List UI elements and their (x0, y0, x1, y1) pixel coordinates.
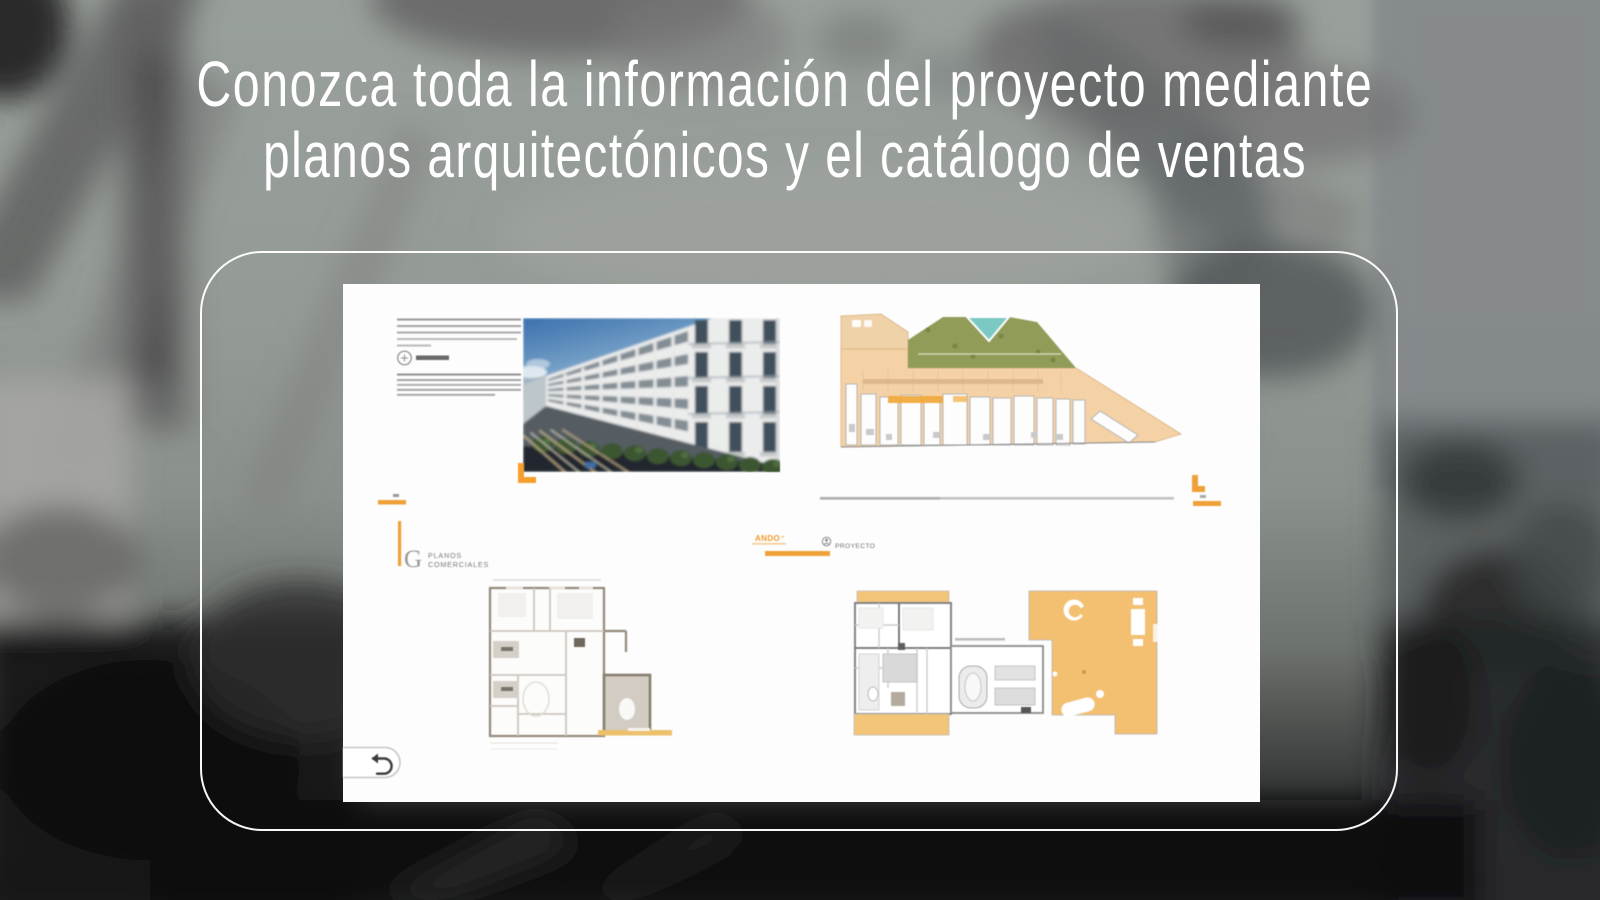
svg-text:ANDO: ANDO (755, 534, 780, 543)
svg-text:PLANOS: PLANOS (428, 551, 462, 560)
svg-text:+: + (781, 535, 785, 541)
svg-text:G: G (404, 546, 422, 573)
svg-text:PROYECTO: PROYECTO (835, 543, 875, 550)
svg-text:COMERCIALES: COMERCIALES (428, 560, 489, 569)
